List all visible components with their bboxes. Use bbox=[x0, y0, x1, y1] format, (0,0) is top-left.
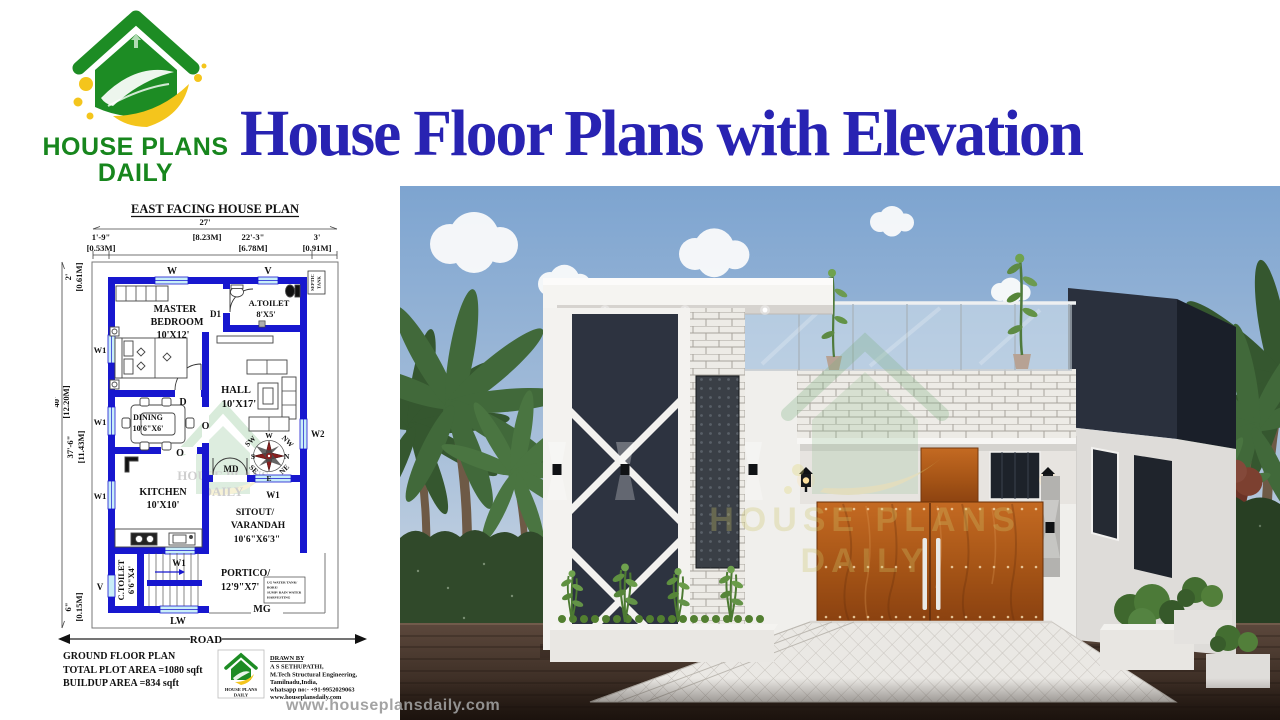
svg-text:22'-3": 22'-3" bbox=[242, 232, 265, 242]
svg-text:[0.15M]: [0.15M] bbox=[74, 592, 84, 621]
svg-text:A.TOILET: A.TOILET bbox=[249, 298, 290, 308]
plan-heading: EAST FACING HOUSE PLAN bbox=[131, 202, 299, 216]
svg-text:BORE/: BORE/ bbox=[267, 586, 279, 590]
svg-text:HOUSE PLANS: HOUSE PLANS bbox=[709, 501, 1021, 539]
svg-text:W: W bbox=[265, 431, 273, 440]
svg-text:LW: LW bbox=[170, 616, 186, 627]
svg-text:10'6"X6'3": 10'6"X6'3" bbox=[234, 535, 280, 545]
svg-text:E: E bbox=[266, 474, 271, 483]
svg-text:D: D bbox=[179, 397, 186, 408]
svg-text:BUILDUP AREA =834 sqft: BUILDUP AREA =834 sqft bbox=[63, 678, 180, 689]
svg-text:37'-6": 37'-6" bbox=[65, 436, 75, 459]
svg-text:12'9"X7': 12'9"X7' bbox=[221, 582, 260, 593]
svg-text:DAILY: DAILY bbox=[234, 693, 249, 698]
svg-text:D1: D1 bbox=[210, 309, 221, 319]
septic-tank: SEPTIC TANK bbox=[308, 271, 325, 294]
svg-text:Tamilnadu,India,: Tamilnadu,India, bbox=[270, 679, 318, 686]
side-window bbox=[1092, 448, 1118, 540]
svg-text:DINING: DINING bbox=[133, 413, 163, 422]
floor-plan-drawing: EAST FACING HOUSE PLAN 27' 1'-9" [8.23M]… bbox=[55, 195, 400, 720]
svg-text:HARVESTING: HARVESTING bbox=[267, 596, 291, 600]
svg-text:27': 27' bbox=[200, 217, 211, 227]
side-dark-panel bbox=[1134, 455, 1172, 578]
svg-text:NW: NW bbox=[280, 433, 296, 449]
svg-text:[12.20M]: [12.20M] bbox=[61, 385, 71, 418]
svg-text:PORTICO/: PORTICO/ bbox=[221, 568, 270, 579]
svg-text:MASTER: MASTER bbox=[154, 304, 198, 315]
svg-text:1'-9": 1'-9" bbox=[92, 232, 111, 242]
plan-footer: GROUND FLOOR PLAN TOTAL PLOT AREA =1080 … bbox=[63, 651, 203, 689]
gate-handle bbox=[936, 538, 941, 610]
svg-text:SUMP/ RAIN WATER: SUMP/ RAIN WATER bbox=[267, 591, 302, 595]
svg-text:2': 2' bbox=[63, 274, 73, 281]
top-dimensions: 27' 1'-9" [8.23M] 22'-3" 3' [0.53M] [6.7… bbox=[87, 217, 337, 259]
svg-text:MD: MD bbox=[224, 464, 239, 474]
svg-text:DRAWN BY: DRAWN BY bbox=[270, 655, 305, 662]
svg-text:[0.53M]: [0.53M] bbox=[87, 243, 116, 253]
svg-text:whatsapp no:- +91-9952029063: whatsapp no:- +91-9952029063 bbox=[270, 687, 355, 694]
svg-text:C.TOILET: C.TOILET bbox=[116, 559, 126, 600]
svg-text:8'X5': 8'X5' bbox=[256, 309, 275, 319]
svg-text:3': 3' bbox=[314, 232, 321, 242]
svg-text:[6.78M]: [6.78M] bbox=[239, 243, 268, 253]
svg-text:10'X10': 10'X10' bbox=[147, 500, 180, 511]
svg-text:SEPTIC: SEPTIC bbox=[310, 274, 315, 291]
svg-text:GROUND FLOOR PLAN: GROUND FLOOR PLAN bbox=[63, 651, 176, 662]
dusk-vignette bbox=[400, 678, 1280, 720]
svg-text:6": 6" bbox=[63, 602, 73, 611]
plan-logo-box: HOUSE PLANS DAILY bbox=[218, 650, 264, 698]
page-title: House Floor Plans with Elevation bbox=[240, 96, 1200, 172]
svg-text:MG: MG bbox=[253, 604, 270, 615]
svg-text:KITCHEN: KITCHEN bbox=[139, 487, 187, 498]
svg-text:10'X12': 10'X12' bbox=[157, 330, 190, 341]
svg-text:W1: W1 bbox=[94, 345, 107, 355]
svg-text:[11.43M]: [11.43M] bbox=[76, 431, 86, 464]
svg-text:V: V bbox=[97, 582, 104, 592]
left-dimensions: 2' [0.61M] 40' [12.20M] 37'-6" [11.43M] … bbox=[55, 262, 86, 628]
brand-name-line1: HOUSE PLANS bbox=[28, 134, 243, 160]
svg-text:W: W bbox=[167, 266, 177, 277]
svg-text:TANK: TANK bbox=[317, 276, 322, 289]
elevation-render: HOUSE PLANS DAILY bbox=[400, 186, 1280, 720]
svg-text:ROAD: ROAD bbox=[190, 634, 222, 646]
svg-text:SITOUT/: SITOUT/ bbox=[236, 508, 275, 518]
svg-text:O: O bbox=[176, 448, 184, 459]
svg-text:W1: W1 bbox=[266, 490, 280, 500]
svg-text:[8.23M]: [8.23M] bbox=[193, 232, 222, 242]
road: ROAD bbox=[58, 634, 367, 646]
svg-text:O: O bbox=[202, 421, 210, 432]
navy-parapet-front bbox=[1068, 288, 1177, 439]
svg-text:W1: W1 bbox=[94, 417, 107, 427]
brand-name-line2: DAILY bbox=[28, 160, 243, 186]
svg-text:10'6"X6': 10'6"X6' bbox=[133, 424, 164, 433]
thumbnail-canvas: HOUSE PLANS DAILY House Floor Plans with… bbox=[0, 0, 1280, 720]
svg-text:V: V bbox=[264, 266, 272, 277]
svg-text:W1: W1 bbox=[94, 491, 107, 501]
svg-text:10'X17': 10'X17' bbox=[222, 399, 257, 410]
perforated-panel bbox=[696, 376, 739, 568]
svg-text:VARANDAH: VARANDAH bbox=[231, 521, 286, 531]
svg-text:HOUSE PLANS: HOUSE PLANS bbox=[225, 687, 258, 692]
website-watermark: www.houseplansdaily.com bbox=[286, 697, 500, 715]
entry-door bbox=[921, 448, 978, 505]
downlight bbox=[760, 305, 770, 315]
svg-text:BEDROOM: BEDROOM bbox=[151, 317, 204, 328]
svg-text:[0.61M]: [0.61M] bbox=[74, 262, 84, 291]
svg-text:DAILY: DAILY bbox=[801, 542, 930, 580]
svg-text:W2: W2 bbox=[311, 429, 325, 439]
svg-text:N: N bbox=[284, 452, 290, 461]
svg-text:M.Tech Structural Engineering,: M.Tech Structural Engineering, bbox=[270, 672, 358, 679]
svg-text:6'6"X4': 6'6"X4' bbox=[126, 566, 136, 594]
svg-text:[0.91M]: [0.91M] bbox=[303, 243, 332, 253]
svg-text:HALL: HALL bbox=[221, 385, 251, 396]
brand-logo: HOUSE PLANS DAILY bbox=[28, 6, 243, 187]
svg-text:TOTAL PLOT AREA =1080 sqft: TOTAL PLOT AREA =1080 sqft bbox=[63, 665, 203, 676]
svg-text:W1: W1 bbox=[172, 558, 186, 568]
drawn-by-block: DRAWN BY A S SETHUPATHI, M.Tech Structur… bbox=[270, 655, 358, 701]
svg-text:UG WATER TANK/: UG WATER TANK/ bbox=[267, 581, 298, 585]
svg-text:S: S bbox=[251, 452, 255, 461]
house-logo-icon bbox=[56, 6, 216, 134]
svg-text:A S SETHUPATHI,: A S SETHUPATHI, bbox=[270, 664, 324, 671]
